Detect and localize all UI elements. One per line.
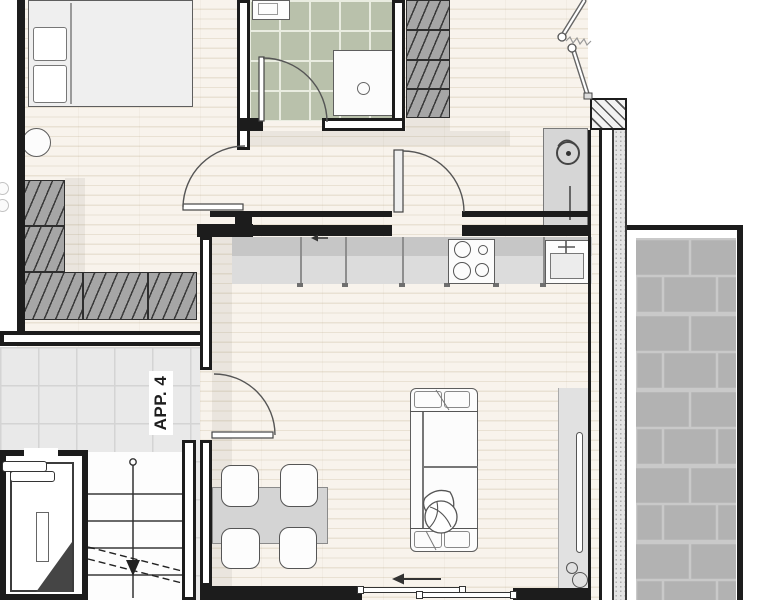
stair-direction-arrow-icon xyxy=(126,560,140,576)
door-jamb-block xyxy=(584,93,592,99)
door-pivot xyxy=(558,33,566,41)
insulation-squiggle xyxy=(566,37,591,45)
open-door-leaf-1-core xyxy=(563,1,584,35)
entrance-door-leaf xyxy=(212,432,273,438)
boiler-curl xyxy=(558,140,576,146)
bathroom-door-arc xyxy=(263,58,327,122)
bedroom-door-leaf xyxy=(183,204,243,210)
elevator-wedge xyxy=(36,542,72,592)
floor-plan: APP. 4 xyxy=(0,0,777,600)
sofa-armrest-fold xyxy=(436,390,449,410)
entrance-door-arc xyxy=(214,374,275,435)
hall-door-arc xyxy=(403,151,464,212)
apartment-label-text: APP. 4 xyxy=(151,376,170,431)
bedroom-door-arc xyxy=(183,146,245,207)
direction-arrow-head xyxy=(392,574,404,585)
stair-walk-start xyxy=(130,459,136,465)
open-door-leaf-2-core xyxy=(573,49,587,93)
hall-door-leaf xyxy=(394,150,403,212)
sofa-blanket xyxy=(425,501,457,533)
sofa-armrest-fold xyxy=(426,531,436,550)
passage-arrow-head xyxy=(311,235,318,242)
door-pivot xyxy=(568,44,576,52)
apartment-label: APP. 4 xyxy=(149,371,173,435)
bathroom-door-leaf xyxy=(259,57,264,121)
plan-annotations xyxy=(0,0,777,600)
